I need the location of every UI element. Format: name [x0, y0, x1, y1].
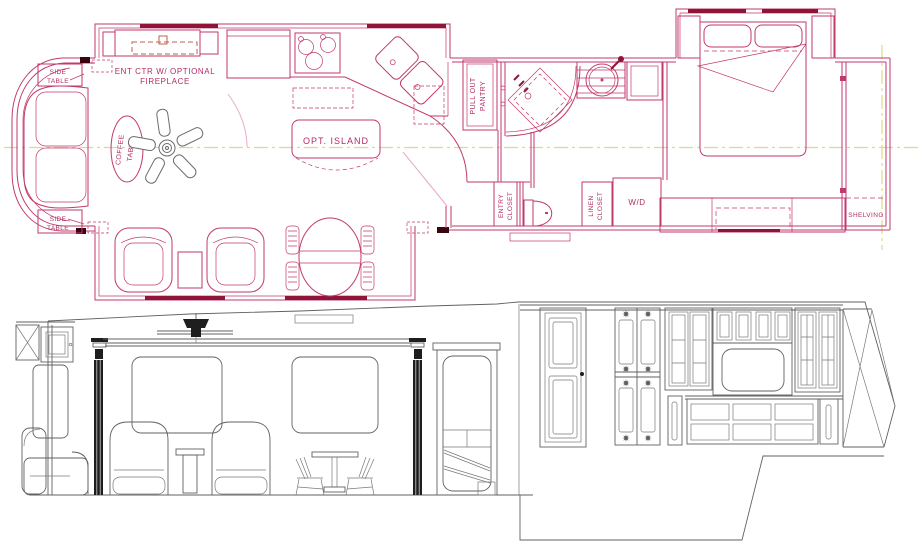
glass-cabinet-mid: [665, 308, 712, 390]
slide-seal-segment: [367, 24, 446, 28]
cooktop: [295, 33, 340, 73]
fridge-swing-arc: [228, 94, 247, 147]
medicine-cabinet: [627, 62, 662, 100]
lower-floor-line: [520, 456, 884, 540]
soffit-line: [520, 305, 843, 310]
pilaster-right: [409, 338, 426, 495]
ceiling-fan-elevation: [157, 313, 233, 343]
pilaster-left: [91, 338, 108, 495]
nightstand-left: [678, 16, 700, 58]
floor-plan-view: OPT. ISLAND PULL OUT PANTRY: [4, 9, 918, 300]
side-table-bot-label1: SIDE: [50, 216, 67, 223]
side-table-bot-label2: TABLE: [47, 225, 69, 232]
side-table-top-label2: TABLE: [47, 78, 69, 85]
shower: [501, 62, 580, 140]
wd-label: W/D: [628, 198, 645, 207]
dinette-elevation: [296, 452, 374, 495]
living-window-2: [292, 357, 378, 433]
entry-closet-label1: ENTRY: [498, 194, 505, 218]
linen-closet: LINEN CLOSET: [582, 182, 612, 226]
elevation-silhouette: [48, 302, 895, 540]
side-table-top-label1: SIDE: [50, 69, 67, 76]
coffee-label1: COFFEE: [115, 134, 126, 165]
shelving-label: SHELVING: [848, 212, 884, 219]
refrigerator: [227, 30, 290, 147]
driver-side-window: [33, 365, 68, 438]
linen-label2: CLOSET: [597, 192, 604, 220]
drawer-bank: [685, 396, 843, 444]
elevation-view: [16, 302, 895, 540]
top-slideout: [95, 24, 450, 58]
hall-curved-wall: [430, 116, 467, 182]
entry-closet-label2: CLOSET: [507, 192, 514, 220]
dinette-table: [299, 218, 361, 296]
tall-cabinet: [615, 308, 660, 445]
end-table: [178, 252, 202, 288]
pantry-label-line1: PULL OUT: [470, 77, 477, 114]
pillow-left: [704, 25, 751, 47]
drawing-canvas: OPT. ISLAND PULL OUT PANTRY: [0, 0, 922, 560]
rear-wardrobe: SHELVING: [840, 62, 886, 230]
tv-opening: [722, 349, 784, 391]
bathroom-door-elevation: [540, 308, 586, 447]
fireplace-vent: [159, 36, 167, 44]
slide-seal-segment: [140, 24, 218, 28]
recliner-1: [115, 228, 172, 292]
recliner-2: [207, 228, 264, 292]
ceiling-fan-plan: [128, 109, 205, 185]
narrow-cabinet-right: [820, 399, 838, 444]
bedroom-dresser: [660, 198, 845, 232]
entry-closet: ENTRY CLOSET: [494, 182, 517, 226]
toilet: [524, 200, 552, 226]
pillow-right: [755, 25, 802, 47]
side-table-top: SIDE TABLE: [38, 64, 84, 86]
entry-door-elevation: [433, 343, 500, 495]
pantry-label-line2: PANTRY: [480, 81, 487, 111]
opt-island: OPT. ISLAND: [292, 88, 380, 170]
bed: [698, 22, 806, 156]
entry-steps: [444, 450, 490, 483]
entry-step: [510, 233, 570, 241]
ent-ctr-label1: ENT CTR W/ OPTIONAL: [115, 67, 216, 76]
overhead-cabinet-dashed: [414, 86, 444, 124]
crown-molding: [103, 339, 412, 346]
opt-island-label: OPT. ISLAND: [303, 136, 369, 146]
shower-note-marks: [514, 75, 528, 92]
end-table-elevation: [176, 449, 204, 493]
rv-floorplan-drawing: OPT. ISLAND PULL OUT PANTRY: [0, 0, 922, 560]
narrow-cabinet-left: [668, 396, 682, 445]
door-knob: [580, 372, 584, 376]
entertainment-center: [103, 30, 218, 56]
roof-ac-unit: [295, 315, 353, 323]
ent-ctr-label2: FIREPLACE: [140, 77, 190, 86]
linen-label1: LINEN: [588, 195, 595, 216]
tv-hutch: [713, 308, 792, 395]
washer-dryer: W/D: [613, 178, 661, 226]
glass-cabinet-right: [795, 308, 840, 392]
recliner-elevation-2: [212, 422, 270, 495]
pullout-pantry: PULL OUT PANTRY: [463, 60, 497, 130]
